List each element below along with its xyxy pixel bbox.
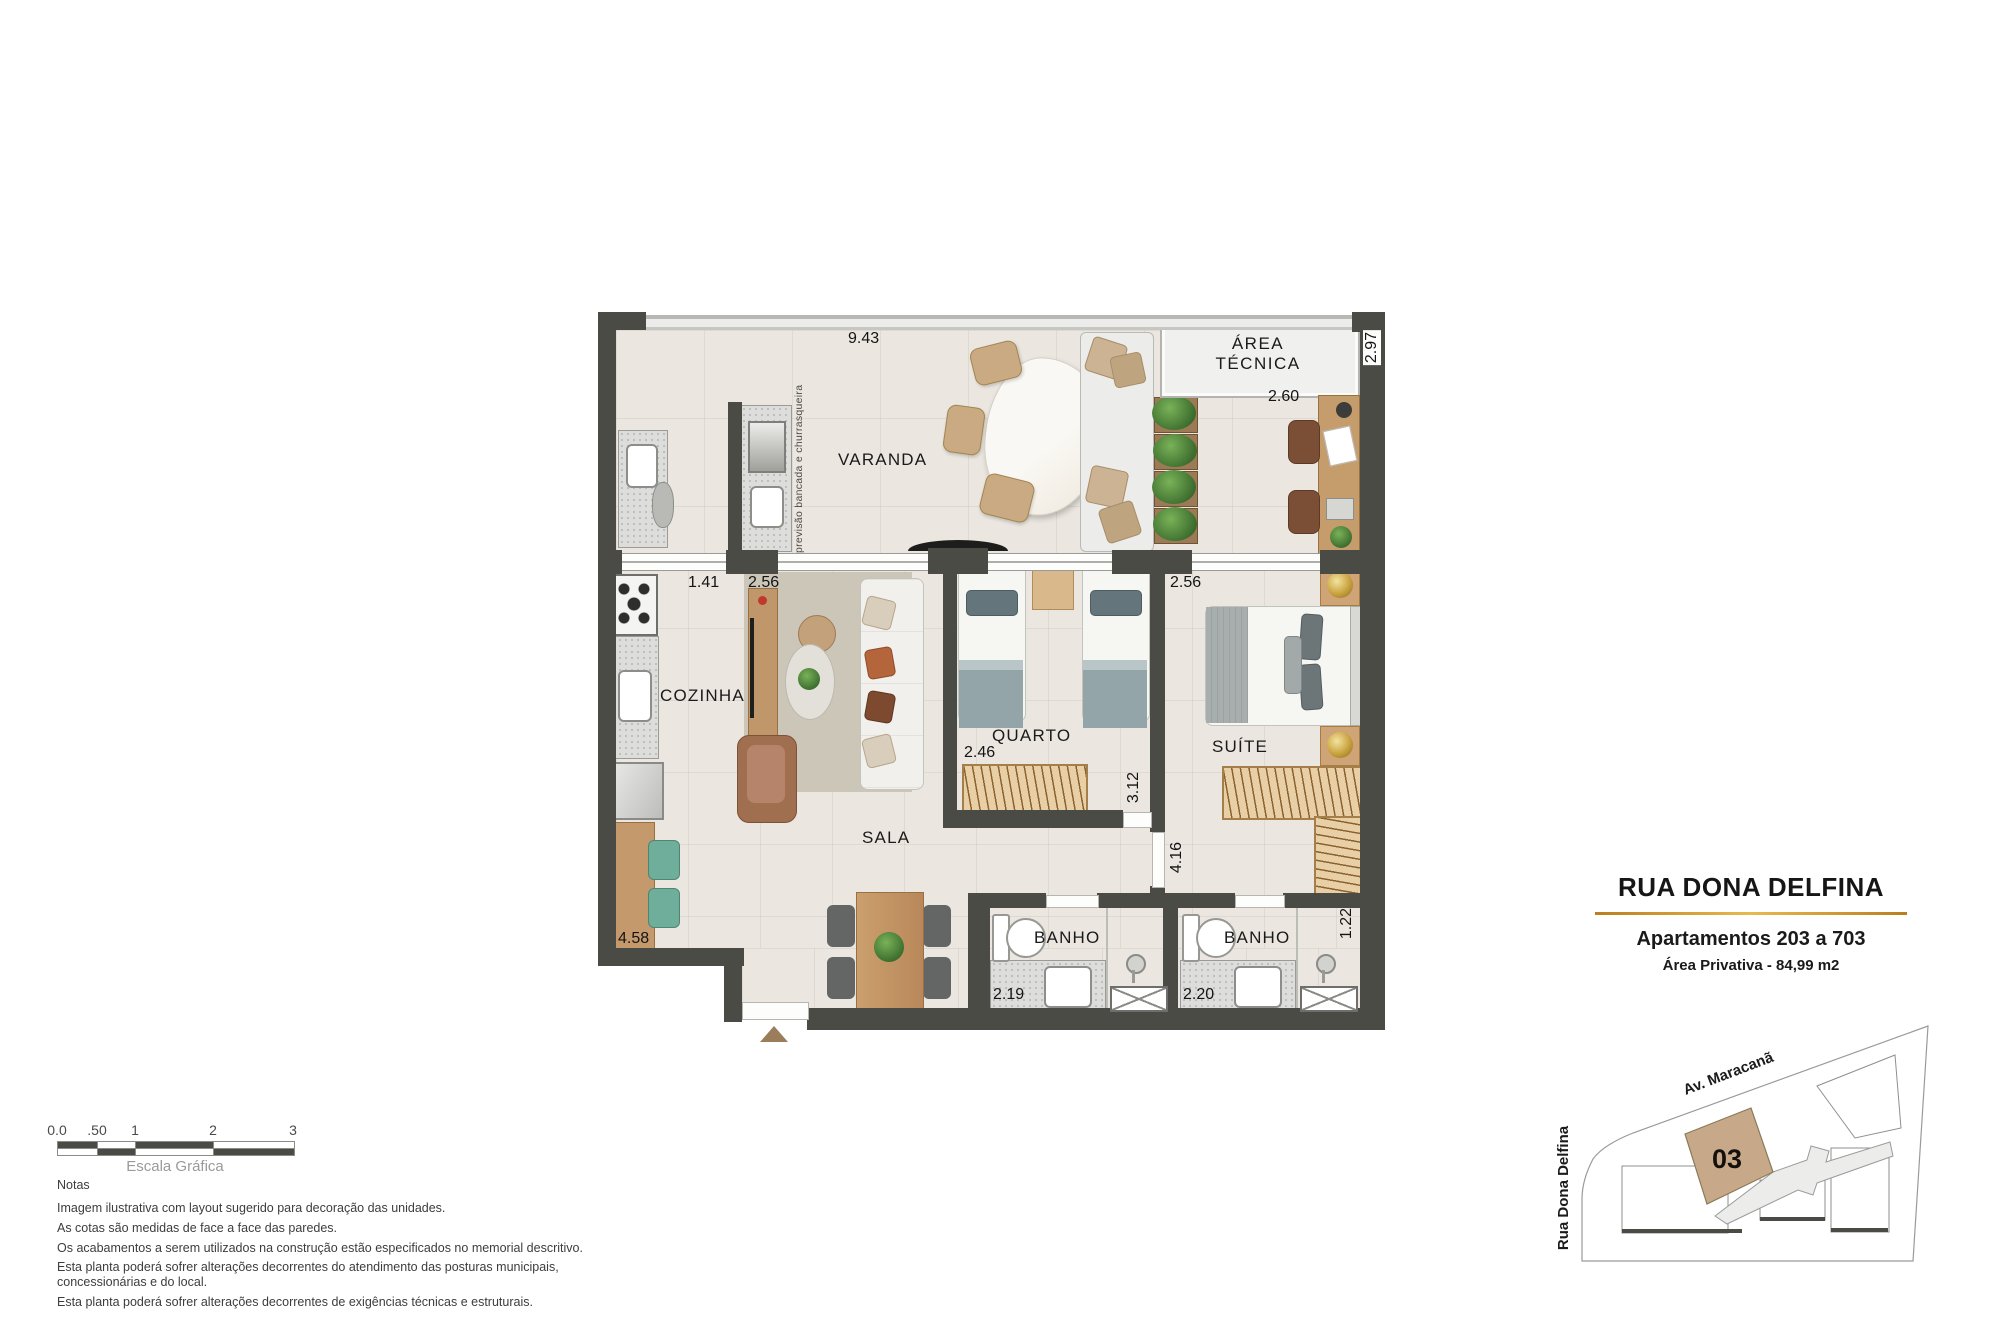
room-label-area-tecnica: ÁREA TÉCNICA <box>1160 334 1356 374</box>
quarto-nightstand <box>1032 566 1074 610</box>
suite-door <box>1152 832 1165 888</box>
scale-tick: 2 <box>209 1122 217 1138</box>
entrance-arrow-icon <box>760 1026 788 1042</box>
quarto-door <box>1123 812 1152 828</box>
desk-chair <box>1288 490 1320 534</box>
bar-stool <box>648 840 680 880</box>
note-line: As cotas são medidas de face a face das … <box>57 1221 602 1236</box>
wall-kitchen-varanda <box>728 402 742 562</box>
coffee-table-plant <box>798 668 820 690</box>
scale-tick: 0.0 <box>47 1122 66 1138</box>
wall-quarto-suite <box>1150 556 1165 832</box>
sofa-pillow <box>864 646 897 680</box>
shower-stem <box>1322 970 1325 983</box>
note-line: Os acabamentos a serem utilizados na con… <box>57 1241 602 1256</box>
desk-laptop <box>1326 498 1354 520</box>
suite-wardrobe-horizontal <box>1222 766 1366 820</box>
planter-plant <box>1152 396 1196 430</box>
note-line: Esta planta poderá sofrer alterações dec… <box>57 1295 602 1310</box>
bench-pillow <box>1109 351 1147 389</box>
varanda-railing <box>646 315 1352 330</box>
scale-segment <box>97 1148 137 1156</box>
service-sink <box>626 444 658 488</box>
shower-stem <box>1132 970 1135 983</box>
dim-suite-width: 2.56 <box>1170 574 1201 592</box>
notes-block: Notas Imagem ilustrativa com layout suge… <box>57 1178 602 1315</box>
wall-sala-quarto <box>943 556 957 828</box>
bed-pillow <box>966 590 1018 616</box>
gold-rule <box>1595 912 1907 915</box>
bed-blanket <box>1083 660 1147 728</box>
dim-kitchen-pass: 1.41 <box>688 574 719 592</box>
desk-lamp <box>1336 402 1352 418</box>
banho-door <box>1235 895 1285 908</box>
quarto-window <box>988 553 1112 571</box>
red-vase <box>758 596 767 605</box>
dining-chair <box>923 957 951 999</box>
note-line: Esta planta poderá sofrer alterações dec… <box>57 1260 602 1290</box>
room-label-quarto: QUARTO <box>992 726 1071 746</box>
dim-closet-width: 2.46 <box>964 744 995 762</box>
sala-sliding-door <box>778 553 928 571</box>
wall-quarto-bottom <box>943 810 1123 828</box>
dim-cozinha-length: 4.58 <box>618 930 649 948</box>
suite-pillow <box>1298 663 1323 710</box>
suite-window <box>1192 553 1320 571</box>
suite-lamp <box>1327 572 1353 598</box>
wall-divider <box>598 550 622 574</box>
scale-tick: 3 <box>289 1122 297 1138</box>
banho-sink <box>1234 966 1282 1008</box>
suite-lamp <box>1327 732 1353 758</box>
wall-banho-top <box>990 893 1046 908</box>
shower-divider <box>1296 908 1298 1008</box>
kitchen-sink <box>618 670 652 722</box>
private-area: Área Privativa - 84,99 m2 <box>1595 957 1907 974</box>
dim-desk-width: 2.60 <box>1268 388 1299 406</box>
barbecue-sink <box>750 486 784 528</box>
room-label-banho-suite: BANHO <box>1224 928 1290 948</box>
sofa-pillow <box>864 690 897 724</box>
shower-icon <box>1316 954 1336 974</box>
planter-plant <box>1153 507 1197 541</box>
title-block: RUA DONA DELFINA Apartamentos 203 a 703 … <box>1595 872 1907 974</box>
bar-stool <box>648 888 680 928</box>
suite-wardrobe-vertical <box>1314 816 1366 896</box>
room-label-varanda: VARANDA <box>838 450 927 470</box>
area-tecnica-line1: ÁREA <box>1160 334 1356 354</box>
scale-caption: Escala Gráfica <box>100 1158 250 1175</box>
wall-divider <box>1320 550 1375 574</box>
dining-chair <box>827 905 855 947</box>
wall-banho-top <box>1283 893 1385 908</box>
wall-entry-step <box>724 948 742 1022</box>
wall-kitchen-bottom <box>598 948 744 966</box>
room-label-cozinha: COZINHA <box>660 686 745 706</box>
planter-plant <box>1153 434 1197 467</box>
room-label-banho-social: BANHO <box>1034 928 1100 948</box>
scale-segment <box>57 1148 99 1156</box>
wall-top-left-stub <box>598 312 646 330</box>
floor-plan-sheet: previsão bancada e churrasqueira ÁREA TÉ… <box>0 0 2003 1336</box>
dining-table-plant <box>874 932 904 962</box>
dim-varanda-depth: 2.97 <box>1363 330 1381 365</box>
desk-chair <box>1288 420 1320 464</box>
vent-shaft <box>1300 986 1358 1012</box>
planter-plant <box>1152 470 1196 504</box>
notes-heading: Notas <box>57 1178 602 1192</box>
wall-right <box>1360 312 1385 1030</box>
scale-segment <box>135 1148 215 1156</box>
room-label-suite: SUÍTE <box>1212 737 1268 757</box>
desk-plant <box>1330 526 1352 548</box>
kitchen-pass-opening <box>622 553 726 571</box>
scale-segment <box>213 1148 295 1156</box>
tv-sala <box>750 618 754 718</box>
suite-pillow-small <box>1284 636 1302 694</box>
banho-sink <box>1044 966 1092 1008</box>
shower-divider <box>1106 908 1108 1008</box>
banho-door <box>1046 895 1099 908</box>
barbecue-annotation: previsão bancada e churrasqueira <box>793 408 805 553</box>
dim-banho-suite-depth: 1.22 <box>1338 908 1356 939</box>
dim-suite-depth: 4.16 <box>1168 842 1186 873</box>
wall-left <box>598 312 616 966</box>
street-label-vertical: Rua Dona Delfina <box>1555 1125 1572 1250</box>
bed-blanket <box>959 660 1023 728</box>
shower-icon <box>1126 954 1146 974</box>
double-bed-blanket <box>1206 607 1248 723</box>
barbecue-grill <box>748 421 786 473</box>
fridge <box>614 762 664 820</box>
entrance-threshold <box>742 1002 809 1020</box>
bed-pillow <box>1090 590 1142 616</box>
suite-pillow <box>1298 613 1323 660</box>
dim-banho-social-width: 2.19 <box>993 986 1024 1004</box>
apartments-range: Apartamentos 203 a 703 <box>1595 928 1907 951</box>
note-line: Imagem ilustrativa com layout sugerido p… <box>57 1201 602 1216</box>
dim-banho-suite-width: 2.20 <box>1183 986 1214 1004</box>
wall-divider-tv <box>928 548 988 574</box>
site-map: 03 Av. Maracanã Rua Dona Delfina <box>1555 1020 2003 1336</box>
scale-bar: 0.0 .50 1 2 3 Escala Gráfica <box>40 1122 310 1178</box>
unit-number: 03 <box>1712 1144 1742 1174</box>
dining-chair <box>827 957 855 999</box>
armchair-seat <box>747 745 785 803</box>
wall-bottom <box>807 1008 1385 1030</box>
area-tecnica-line2: TÉCNICA <box>1160 354 1356 374</box>
scale-tick: 1 <box>131 1122 139 1138</box>
scale-tick: .50 <box>87 1122 106 1138</box>
dining-chair <box>923 905 951 947</box>
quarto-closet <box>962 764 1088 814</box>
varanda-chair <box>942 404 986 457</box>
stove <box>610 574 658 636</box>
dim-varanda-width: 9.43 <box>848 330 879 348</box>
service-vase <box>652 482 674 528</box>
dim-sala-width: 2.56 <box>748 574 779 592</box>
vent-shaft <box>1110 986 1168 1012</box>
room-label-sala: SALA <box>862 828 910 848</box>
street-title: RUA DONA DELFINA <box>1595 872 1907 903</box>
dim-quarto-depth: 3.12 <box>1125 772 1143 803</box>
